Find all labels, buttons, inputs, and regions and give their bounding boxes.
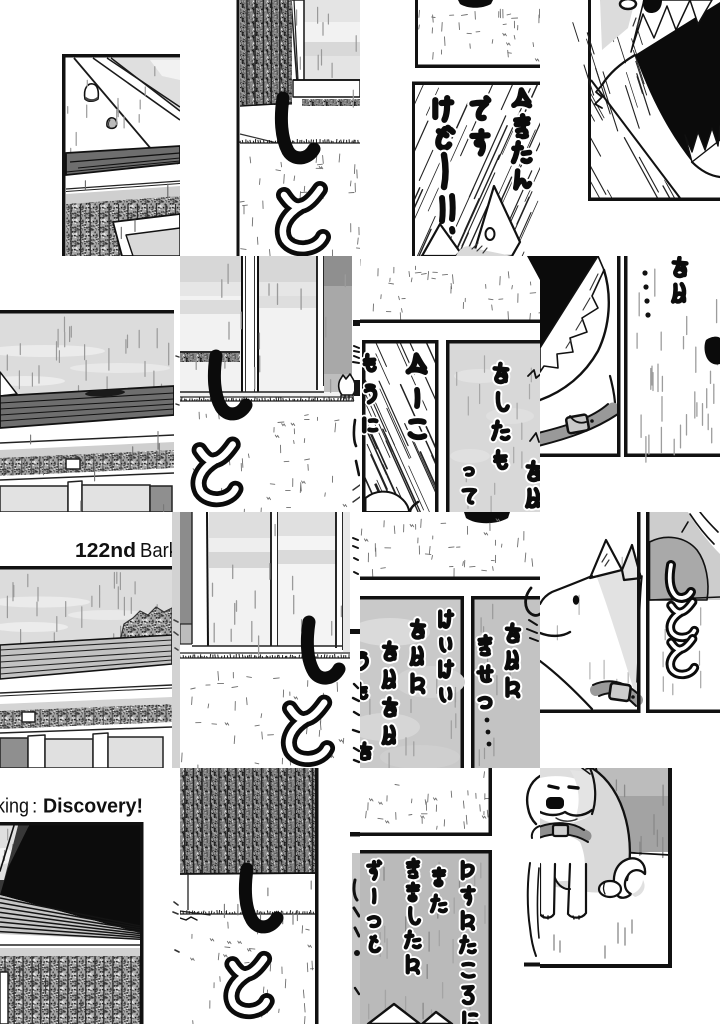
svg-text::: : — [32, 797, 37, 818]
svg-text:Discovery!: Discovery! — [43, 795, 143, 818]
svg-text:122nd: 122nd — [75, 539, 136, 562]
svg-text:king: king — [0, 795, 29, 818]
